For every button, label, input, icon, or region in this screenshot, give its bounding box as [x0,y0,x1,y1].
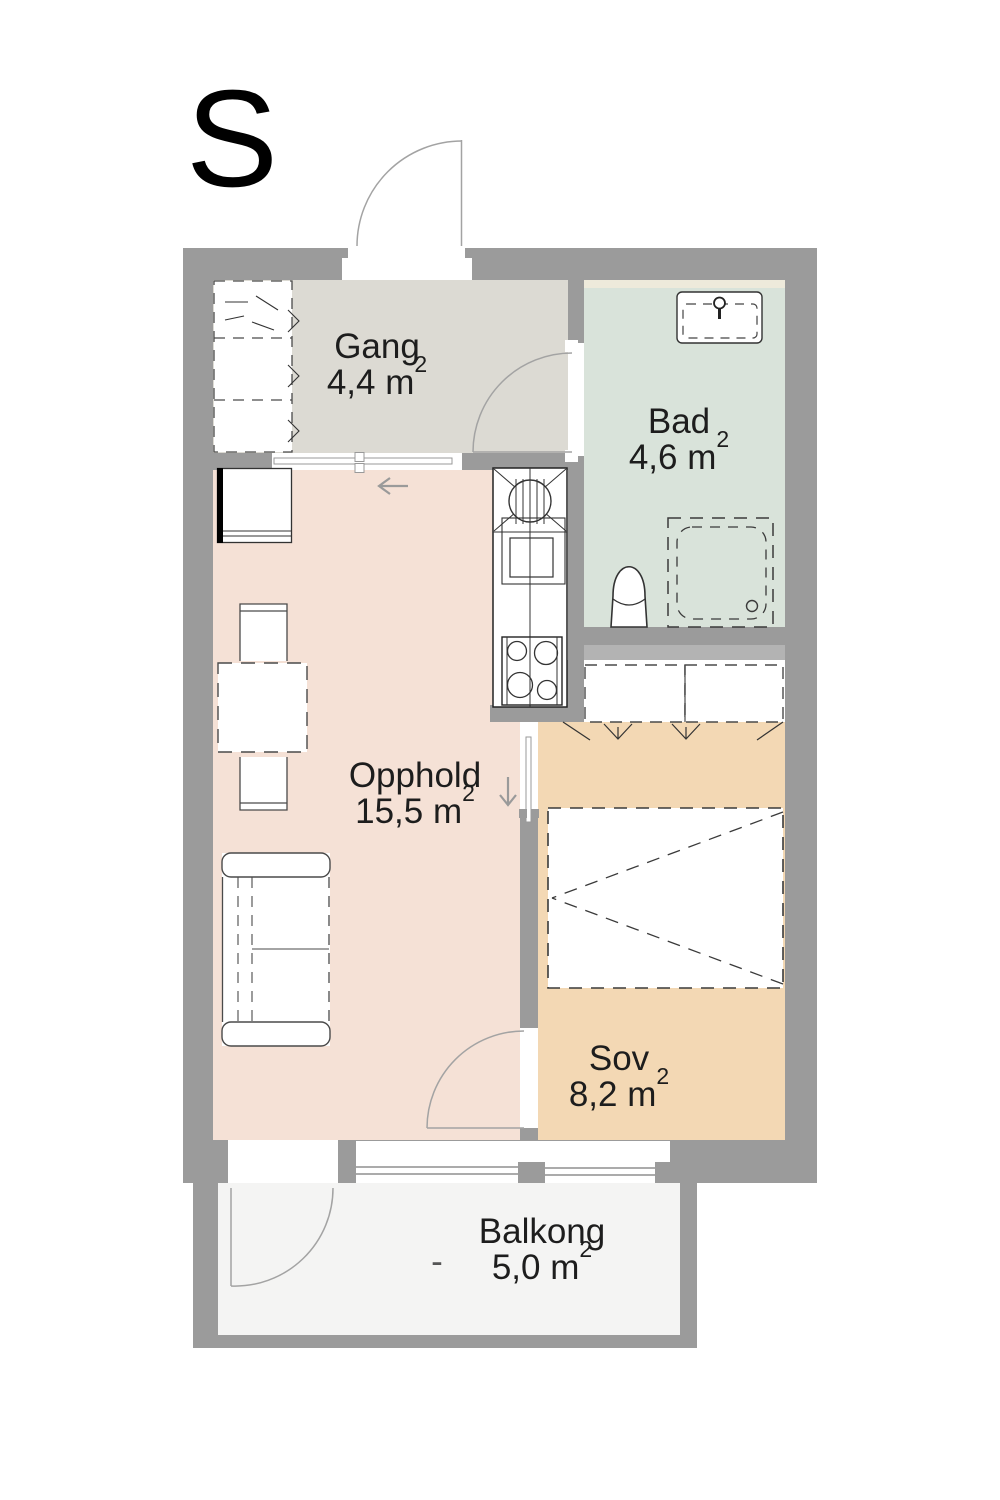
opphold-area: 15,5 m2 [349,794,481,830]
bed [548,808,783,988]
gang-wardrobe [214,281,299,452]
entrance-door-swing-icon [357,140,462,246]
fridge-cabinet [217,468,292,543]
bedroom-wardrobe [563,665,783,740]
cooktop-icon [502,637,562,705]
sov-area: 8,2 m2 [569,1077,669,1113]
shower [668,518,773,627]
sov-label: Sov 8,2 m2 [569,1041,669,1113]
sov-name: Sov [569,1041,669,1077]
bad-label: Bad 4,6 m2 [629,404,729,476]
balkong-area: 5,0 m2 [479,1250,605,1286]
opphold-label: Opphold 15,5 m2 [349,758,481,830]
gang-sliding-door-panel [274,453,452,473]
faucet-icon [714,298,725,309]
balkong-label: Balkong 5,0 m2 [479,1214,605,1286]
bad-door-frame [565,340,578,462]
dining-table [218,663,307,752]
balcony-dash-mark: - [431,1244,443,1280]
oven-icon [510,538,553,577]
slide-down-arrow-icon [500,777,516,805]
gang-area: 4,4 m2 [327,365,427,401]
slide-left-arrow-icon [379,478,408,494]
shower-drain-icon [747,601,758,612]
dining-chair-top [240,604,287,661]
bad-name: Bad [629,404,729,440]
sov-door-swing-icon [427,1031,524,1128]
window-glazing [356,1167,655,1175]
gang-name: Gang [327,329,427,365]
gang-label: Gang 4,4 m2 [327,329,427,401]
bad-area: 4,6 m2 [629,440,729,476]
toilet [611,567,647,627]
dining-set [218,604,307,810]
dining-chair-bottom [240,757,287,810]
balcony-door-swing-icon [231,1188,333,1286]
bathroom-sink [677,292,762,343]
sofa [222,853,330,1046]
sov-sliding-door-panel [519,737,539,822]
kitchen-counter [493,468,567,707]
bad-door-swing-icon [473,353,572,452]
floor-plan: S [0,0,1000,1500]
